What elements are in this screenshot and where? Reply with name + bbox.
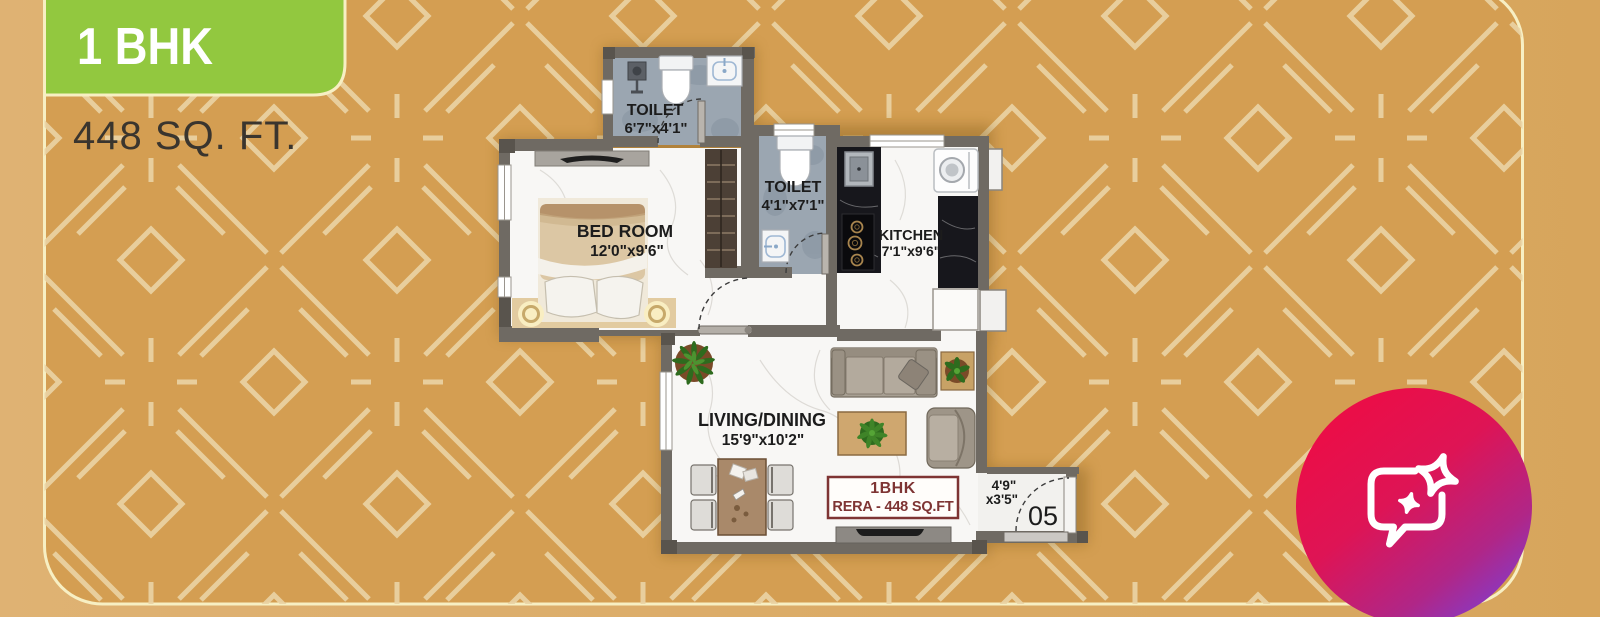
svg-text:05: 05: [1028, 501, 1058, 531]
svg-text:7'1"x9'6": 7'1"x9'6": [882, 243, 941, 259]
svg-text:4'1"x7'1": 4'1"x7'1": [761, 197, 824, 214]
svg-text:1 BHK: 1 BHK: [77, 18, 213, 76]
svg-text:BED ROOM: BED ROOM: [577, 221, 673, 241]
svg-text:448 SQ. FT.: 448 SQ. FT.: [73, 114, 297, 158]
svg-text:TOILET: TOILET: [765, 179, 822, 196]
svg-text:4'9": 4'9": [992, 478, 1017, 493]
svg-text:x3'5": x3'5": [986, 492, 1018, 507]
svg-text:TOILET: TOILET: [627, 102, 684, 119]
svg-text:1BHK: 1BHK: [870, 480, 916, 497]
svg-text:15'9"x10'2": 15'9"x10'2": [722, 432, 804, 449]
svg-text:RERA - 448 SQ.FT: RERA - 448 SQ.FT: [832, 499, 953, 515]
svg-text:12'0"x9'6": 12'0"x9'6": [590, 243, 664, 260]
svg-text:LIVING/DINING: LIVING/DINING: [698, 410, 826, 430]
svg-text:KITCHEN: KITCHEN: [879, 228, 943, 244]
svg-text:6'7"x4'1": 6'7"x4'1": [624, 120, 687, 137]
